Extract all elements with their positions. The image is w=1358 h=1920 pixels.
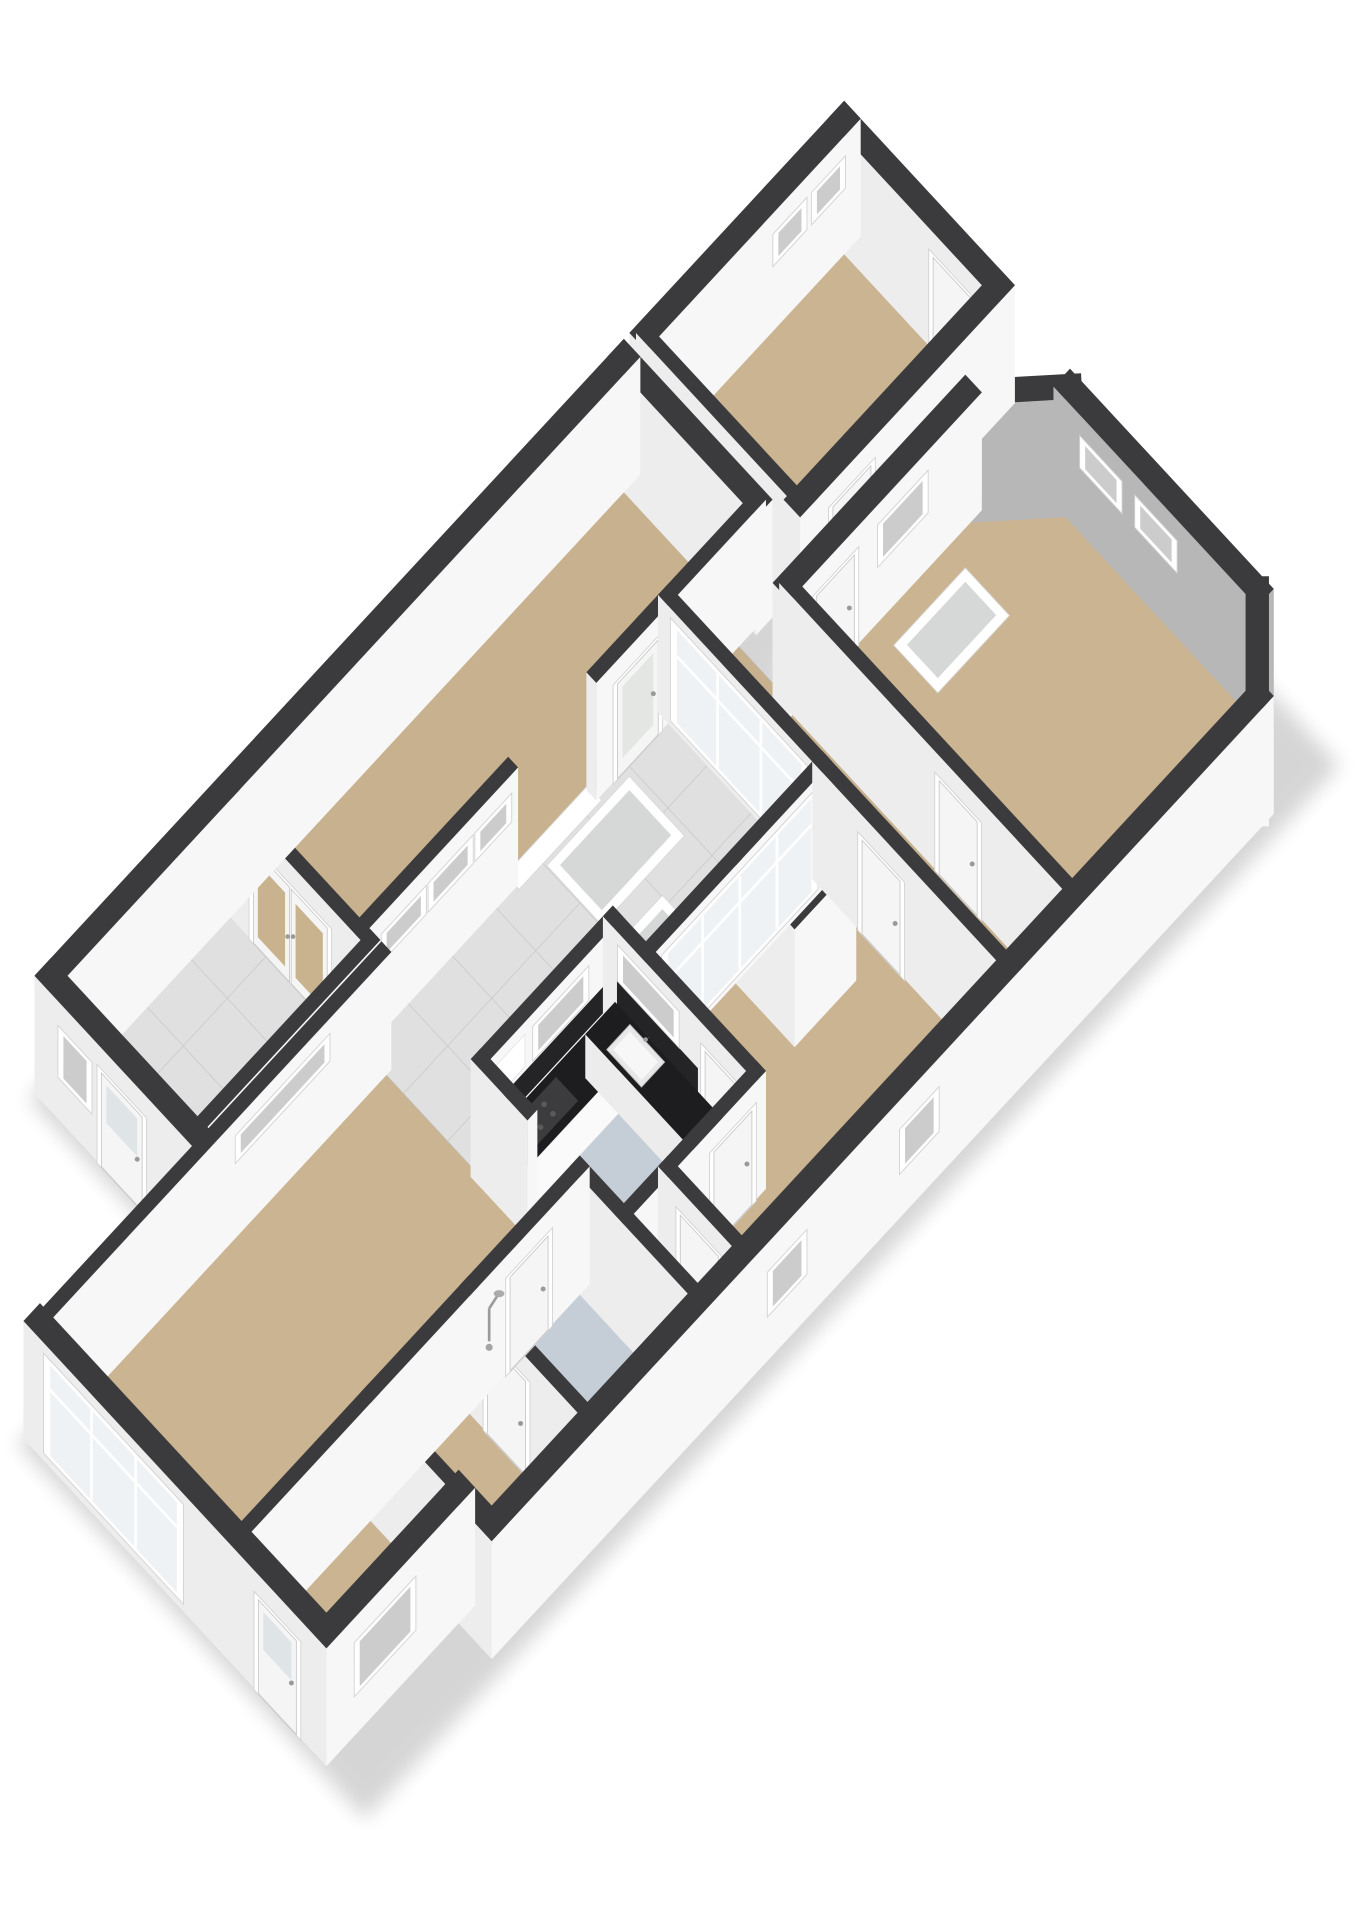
wall-face bbox=[475, 1523, 492, 1659]
hob-burner-icon bbox=[541, 1101, 547, 1107]
door-handle-icon bbox=[518, 1421, 523, 1426]
page-background bbox=[0, 0, 1358, 1920]
hob-burner-icon bbox=[538, 1124, 544, 1130]
faucet-icon bbox=[643, 1037, 648, 1042]
door-handle-icon bbox=[893, 921, 898, 926]
door-handle-icon bbox=[135, 1157, 140, 1162]
door-handle-icon bbox=[289, 1681, 294, 1686]
door-handle-icon bbox=[744, 1162, 749, 1167]
door-handle-icon bbox=[651, 691, 656, 696]
door-handle-icon bbox=[970, 862, 975, 867]
door-handle-icon bbox=[847, 606, 852, 611]
door-handle-icon bbox=[285, 934, 290, 939]
door-handle-icon bbox=[291, 934, 296, 939]
floorplan-3d-render bbox=[0, 0, 1358, 1920]
wall-face bbox=[586, 672, 596, 801]
hob-burner-icon bbox=[550, 1111, 556, 1117]
door-handle-icon bbox=[541, 1287, 546, 1292]
wall-face bbox=[788, 922, 795, 1047]
floorplan-world bbox=[18, 101, 1340, 1820]
wall-face bbox=[310, 1631, 327, 1767]
